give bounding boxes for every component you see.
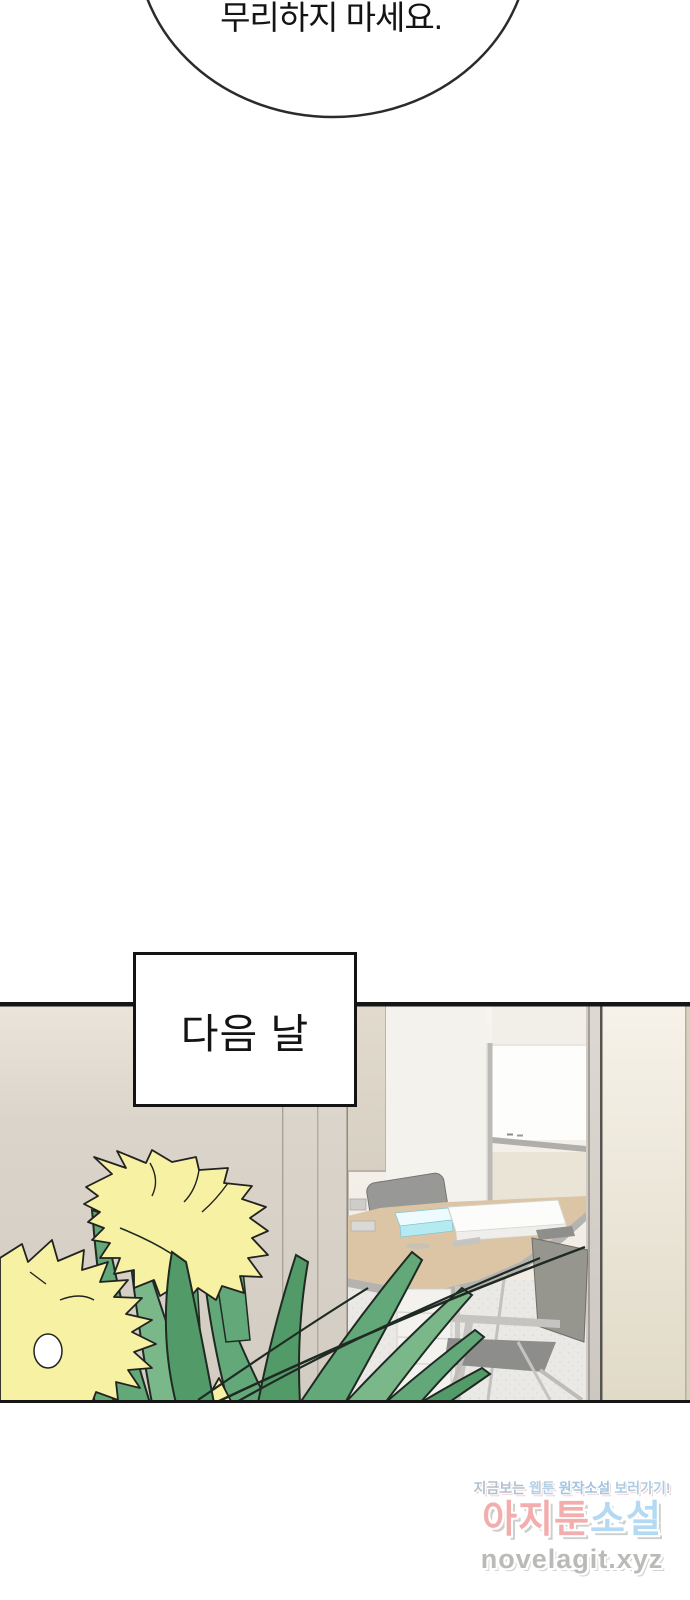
webtoon-page: 무리하지 마세요. xyxy=(0,0,690,1600)
wall-edge-strip xyxy=(687,1006,690,1400)
desk-item-small xyxy=(351,1221,375,1231)
caption-box: 다음 날 xyxy=(133,952,357,1107)
desk-grommet xyxy=(406,1243,430,1249)
wall-seam xyxy=(685,1006,687,1400)
site-name-segment: 소설 xyxy=(590,1499,662,1541)
watermark-promo-line: 지금보는웹툰원작소설보러가기! xyxy=(452,1480,690,1497)
promo-segment: 웹툰 xyxy=(529,1480,555,1496)
whiteboard-top-edge xyxy=(492,1045,586,1046)
watermark-site-name: 아지툰소설 xyxy=(452,1500,690,1540)
wall-below-whiteboard xyxy=(492,1152,586,1202)
door-frame-inner-line xyxy=(588,1006,590,1400)
watermark-site-url: novelagit.xyz xyxy=(452,1544,690,1574)
wall-above-whiteboard xyxy=(492,1006,586,1045)
pole-highlight xyxy=(487,1043,489,1205)
speech-bubble-text: 무리하지 마세요. xyxy=(0,0,662,40)
promo-segment: 지금보는 xyxy=(473,1480,525,1496)
marker xyxy=(507,1134,513,1136)
caption-text: 다음 날 xyxy=(181,1000,310,1060)
flower-highlight xyxy=(34,1334,62,1368)
whiteboard xyxy=(492,1045,586,1140)
right-wall xyxy=(588,1006,690,1400)
site-name-segment: 아지툰 xyxy=(482,1499,590,1541)
door-frame-strip xyxy=(590,1006,600,1400)
cabinet-bottom-edge xyxy=(348,1170,386,1172)
promo-segment: 원작소설 xyxy=(559,1480,611,1496)
interior-right-edge xyxy=(586,1006,588,1400)
promo-segment: 보러가기! xyxy=(614,1480,670,1496)
marker xyxy=(517,1135,523,1137)
panel-bottom-border xyxy=(0,1400,690,1403)
door-frame xyxy=(588,1006,603,1400)
partition xyxy=(386,1006,487,1202)
door-frame-dark-line xyxy=(600,1006,603,1400)
watermark: 지금보는웹툰원작소설보러가기! 아지툰소설 novelagit.xyz xyxy=(452,1480,690,1574)
desk-item-small xyxy=(350,1199,366,1210)
